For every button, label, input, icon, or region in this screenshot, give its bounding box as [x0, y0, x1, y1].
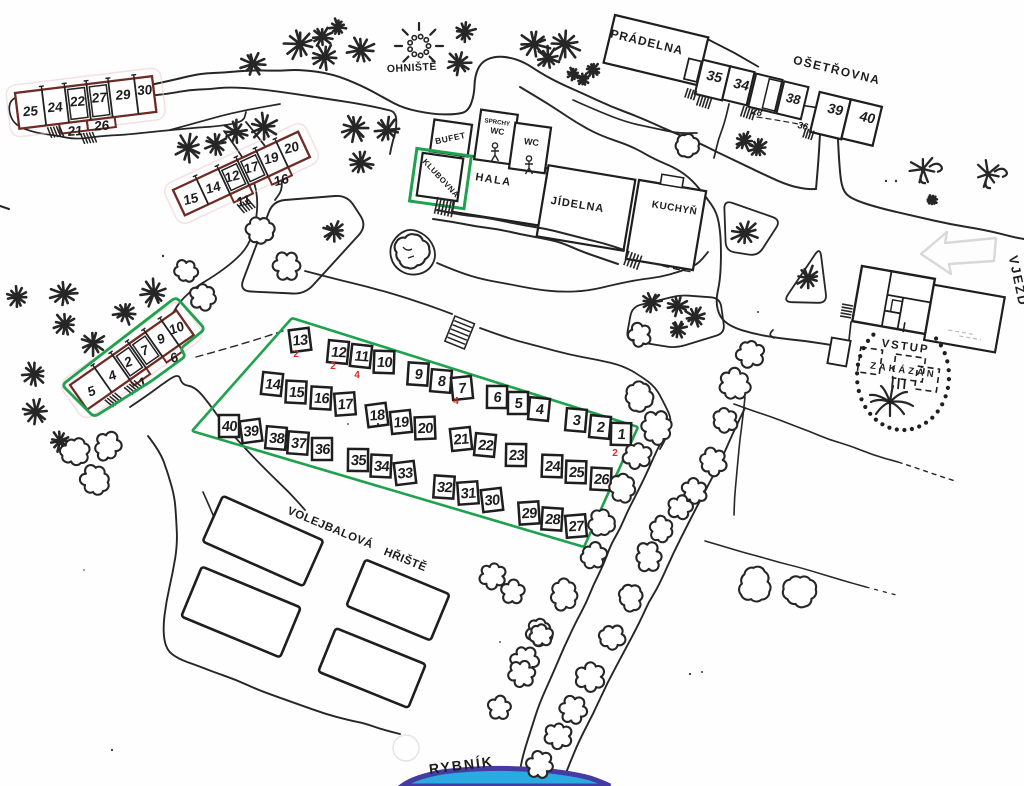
svg-text:28: 28 [544, 512, 562, 528]
svg-text:25: 25 [23, 103, 39, 119]
svg-text:18: 18 [369, 407, 385, 424]
svg-text:12: 12 [330, 345, 348, 362]
svg-text:19: 19 [393, 414, 409, 431]
svg-text:21: 21 [67, 123, 83, 139]
svg-text:26: 26 [94, 118, 110, 134]
svg-text:23: 23 [508, 448, 525, 464]
svg-text:26: 26 [593, 472, 611, 488]
svg-text:WC: WC [490, 125, 505, 137]
svg-text:7: 7 [458, 381, 467, 398]
svg-text:30: 30 [484, 492, 500, 509]
svg-text:16: 16 [313, 391, 331, 407]
svg-text:27: 27 [92, 90, 108, 106]
svg-text:2: 2 [293, 349, 299, 360]
svg-text:21: 21 [453, 431, 469, 448]
svg-text:24: 24 [544, 459, 562, 475]
svg-text:35: 35 [350, 453, 367, 469]
svg-text:30: 30 [137, 82, 153, 98]
svg-text:WC: WC [523, 136, 540, 148]
svg-text:22: 22 [477, 438, 495, 455]
svg-text:10: 10 [376, 355, 394, 371]
svg-text:25: 25 [568, 465, 586, 481]
svg-text:22: 22 [70, 93, 86, 109]
svg-text:40: 40 [221, 419, 238, 435]
svg-text:29: 29 [115, 87, 131, 103]
svg-text:OHNIŠTĚ: OHNIŠTĚ [386, 60, 437, 76]
svg-text:14: 14 [264, 377, 282, 394]
svg-text:38: 38 [268, 431, 286, 448]
svg-text:36: 36 [314, 442, 331, 458]
svg-text:29: 29 [521, 506, 538, 523]
svg-text:31: 31 [460, 486, 477, 503]
svg-text:20: 20 [417, 421, 434, 437]
svg-text:34: 34 [373, 459, 391, 475]
svg-text:2: 2 [330, 361, 336, 372]
svg-text:37: 37 [290, 436, 308, 453]
svg-text:13: 13 [292, 332, 308, 349]
svg-text:4: 4 [354, 370, 360, 381]
svg-text:33: 33 [397, 465, 413, 482]
svg-text:27: 27 [568, 519, 584, 536]
svg-text:2: 2 [612, 448, 618, 459]
svg-text:15: 15 [288, 385, 306, 401]
svg-text:24: 24 [47, 99, 63, 115]
svg-text:17: 17 [337, 397, 353, 414]
svg-text:4: 4 [453, 396, 459, 407]
svg-text:32: 32 [436, 480, 454, 496]
svg-text:39: 39 [243, 423, 259, 440]
